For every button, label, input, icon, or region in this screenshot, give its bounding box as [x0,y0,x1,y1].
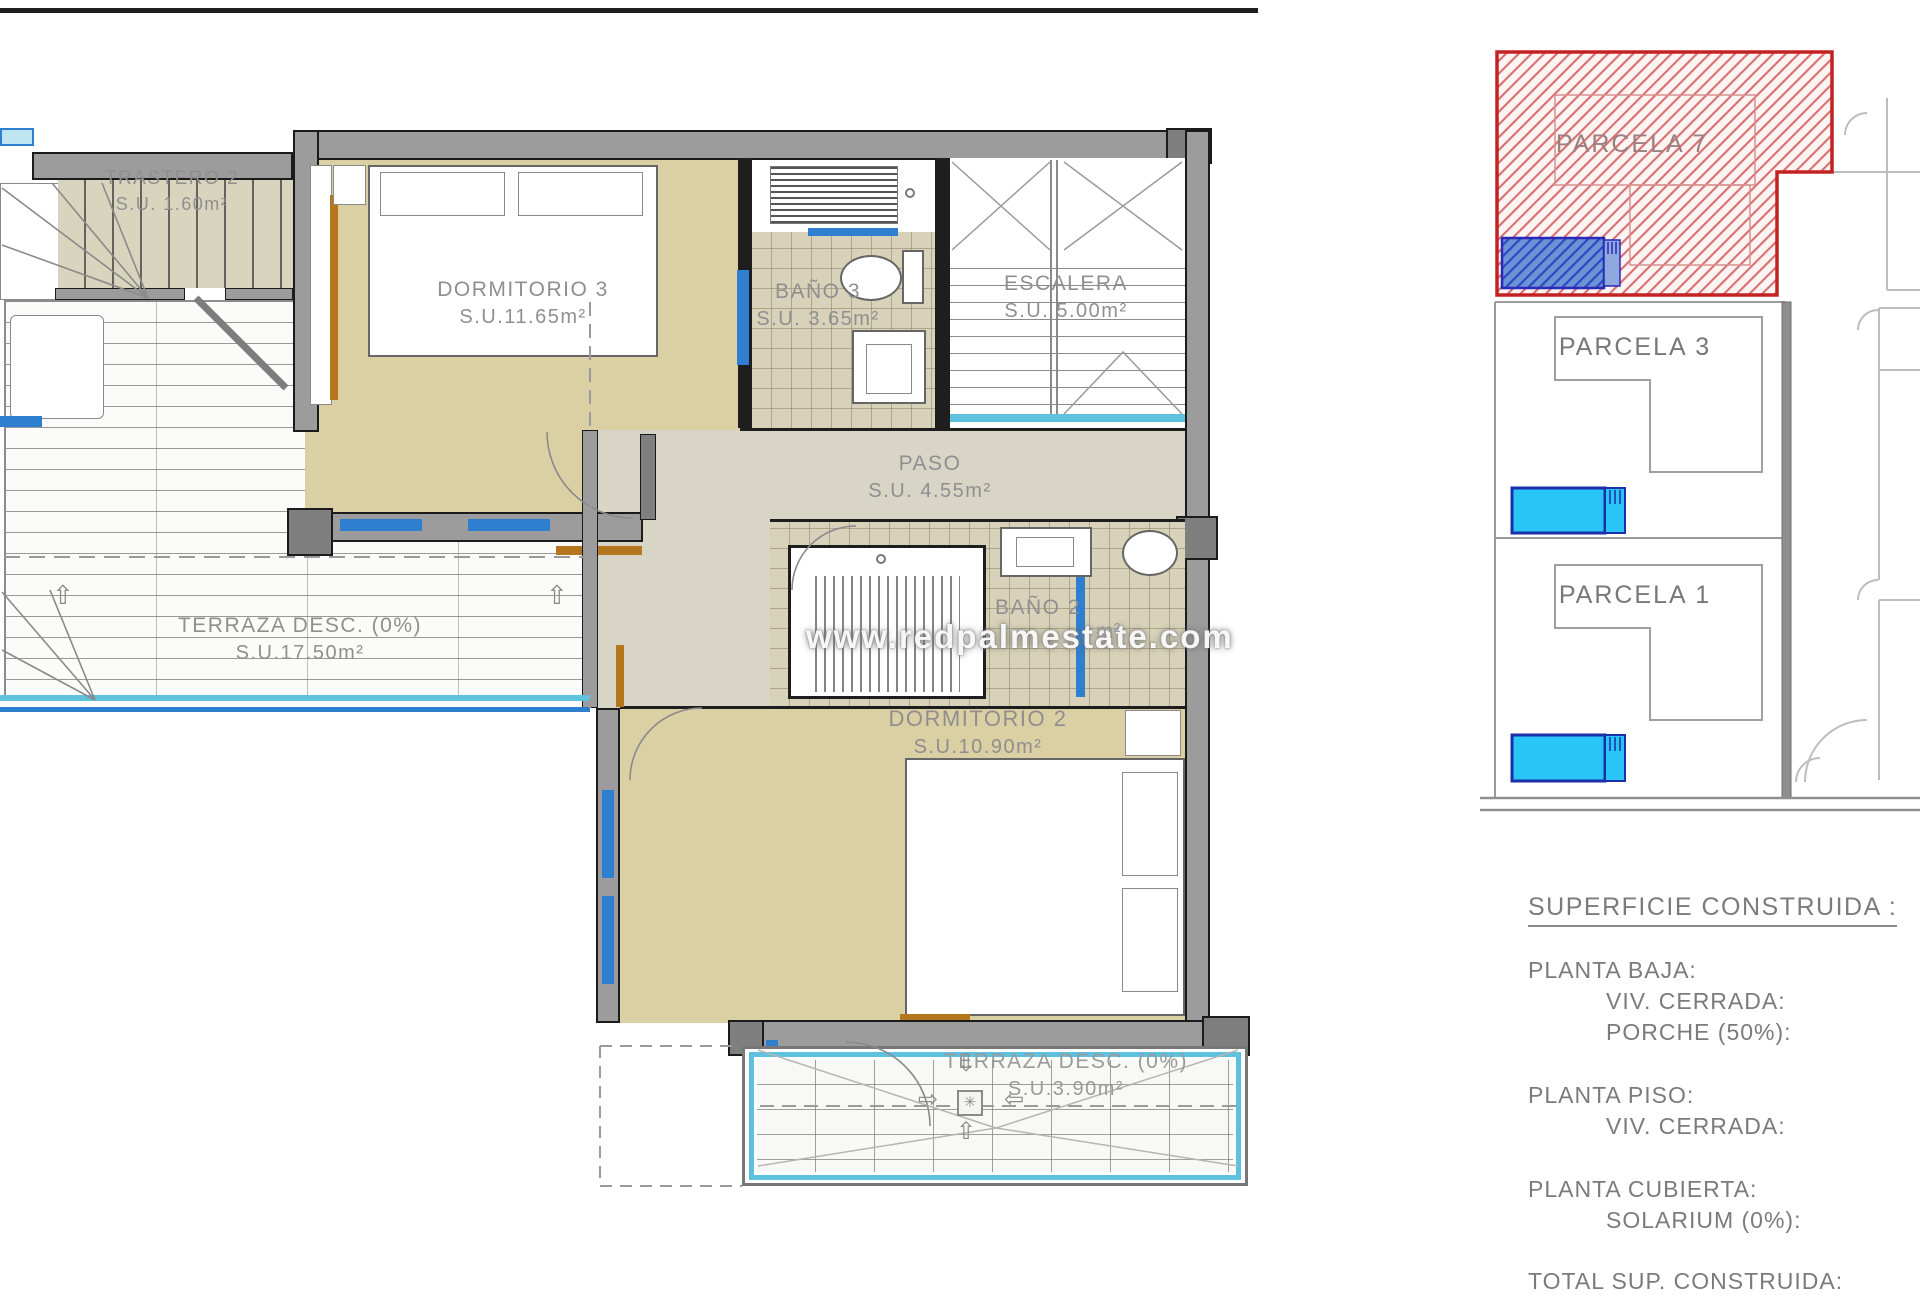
summary-item: PORCHE (50%): [1606,1019,1918,1046]
ac-grille [770,166,898,224]
summary-title: SUPERFICIE CONSTRUIDA : [1528,893,1897,927]
sink-basin [866,344,912,394]
pillow [518,172,643,216]
room-label-bano3: BAÑO 3 S.U. 3.65m² [756,278,879,333]
room-area: S.U. 5.00m² [1004,298,1128,325]
room-label-trastero2: TRASTERO 2 S.U. 1.60m² [105,166,239,216]
room-name: TRASTERO 2 [105,166,239,192]
party-wall [1782,302,1791,798]
down-arrow-icon: ⇩ [956,1052,976,1076]
window-strip [602,790,614,878]
window-strip [468,519,550,531]
pillow [380,172,505,216]
terrace-furniture [10,315,104,419]
wall [55,288,185,300]
room-area: S.U. 4.55m² [868,478,991,505]
wall [225,288,293,300]
terrace-rail [0,695,590,701]
parcel-label-parcela3: PARCELA 3 [1559,333,1711,361]
summary-item: SOLARIUM (0%): [1606,1207,1918,1234]
stair-bottom-rail [950,414,1185,422]
parcela3-pool [1512,488,1625,533]
window-strip [808,228,898,236]
window-strip [0,416,42,427]
stairwell-upper [950,158,1185,252]
toilet-tank [902,250,924,304]
room-label-terraza-izq: TERRAZA DESC. (0%) S.U.17.50m² [178,612,422,667]
watermark: www.redpalmestate.com [806,618,1234,656]
floor-plan-page: { "watermark": "www.redpalmestate.com", … [0,0,1920,1280]
left-arrow-icon: ⇦ [1004,1088,1024,1112]
door-sill [556,546,642,555]
parcel-boundaries [1495,302,1785,798]
knob [905,188,915,198]
room-label-dormitorio3: DORMITORIO 3 S.U.11.65m² [437,276,609,331]
room-area-fragment: m² [1096,620,1121,644]
room-area: S.U.11.65m² [437,304,609,331]
room-name: PASO [868,450,991,478]
up-arrow-icon: ⇧ [52,582,74,608]
wall [293,130,1210,160]
room-name: TERRAZA DESC. (0%) [944,1048,1188,1076]
up-arrow-icon: ⇧ [956,1120,976,1144]
wall [640,434,656,520]
up-arrow-icon: ⇧ [546,582,568,608]
room-label-dormitorio2: DORMITORIO 2 S.U.10.90m² [889,704,1068,761]
room-label-escalera: ESCALERA S.U. 5.00m² [1004,270,1128,325]
room-area: S.U. 3.65m² [756,306,879,333]
summary-group-planta-piso: PLANTA PISO: VIV. CERRADA: [1528,1082,1918,1140]
summary-item: VIV. CERRADA: [1606,1113,1918,1140]
street-line [1480,798,1920,810]
wall [1185,130,1210,1058]
room-area: S.U.10.90m² [889,734,1068,761]
parcela7-pool [1502,238,1620,288]
closet-strip [310,165,332,405]
summary-item: VIV. CERRADA: [1606,988,1918,1015]
room-area: S.U. 1.60m² [105,192,239,216]
summary-group-label: PLANTA PISO: [1528,1082,1918,1109]
summary-group-planta-baja: PLANTA BAJA: VIV. CERRADA: PORCHE (50%): [1528,957,1918,1046]
room-name: DORMITORIO 3 [437,276,609,304]
site-plan: PARCELA 7 PARCELA 3 PARCELA 1 [1480,40,1920,830]
nightstand [1125,710,1181,756]
room-name: ESCALERA [1004,270,1128,298]
right-arrow-icon: ⇨ [918,1088,938,1112]
page-top-rule [0,8,1258,13]
toilet [1122,530,1178,576]
sink-basin [1016,537,1074,567]
closet-door [330,195,338,400]
window-strip [602,896,614,984]
terrace-rail [0,707,590,712]
window-strip [340,519,422,531]
parcel-label-parcela1: PARCELA 1 [1559,581,1711,609]
nightstand [333,165,366,205]
pillow [1122,888,1178,992]
drain-icon: ✳ [957,1090,983,1116]
room-label-paso: PASO S.U. 4.55m² [868,450,991,505]
wall [935,158,950,428]
wall-pillar [287,508,333,556]
window-strip [0,128,34,146]
door-jamb [616,645,624,707]
summary-group-label: PLANTA BAJA: [1528,957,1918,984]
summary-group-label: PLANTA CUBIERTA: [1528,1176,1918,1203]
built-area-summary: SUPERFICIE CONSTRUIDA : PLANTA BAJA: VIV… [1528,893,1918,1295]
room-name: DORMITORIO 2 [889,704,1068,734]
wall [582,430,598,708]
shower-drain-dot [876,554,886,564]
wall [740,428,1185,431]
parcel-label-parcela7: PARCELA 7 [1556,130,1708,158]
summary-group-planta-cubierta: PLANTA CUBIERTA: SOLARIUM (0%): [1528,1176,1918,1234]
room-area: S.U.17.50m² [178,640,422,667]
parcela1-pool [1512,735,1625,781]
summary-total: TOTAL SUP. CONSTRUIDA: [1528,1268,1918,1295]
room-name: TERRAZA DESC. (0%) [178,612,422,640]
neighbour-outlines [1796,98,1920,782]
window-strip [737,270,749,365]
pillow [1122,772,1178,876]
room-name: BAÑO 3 [756,278,879,306]
